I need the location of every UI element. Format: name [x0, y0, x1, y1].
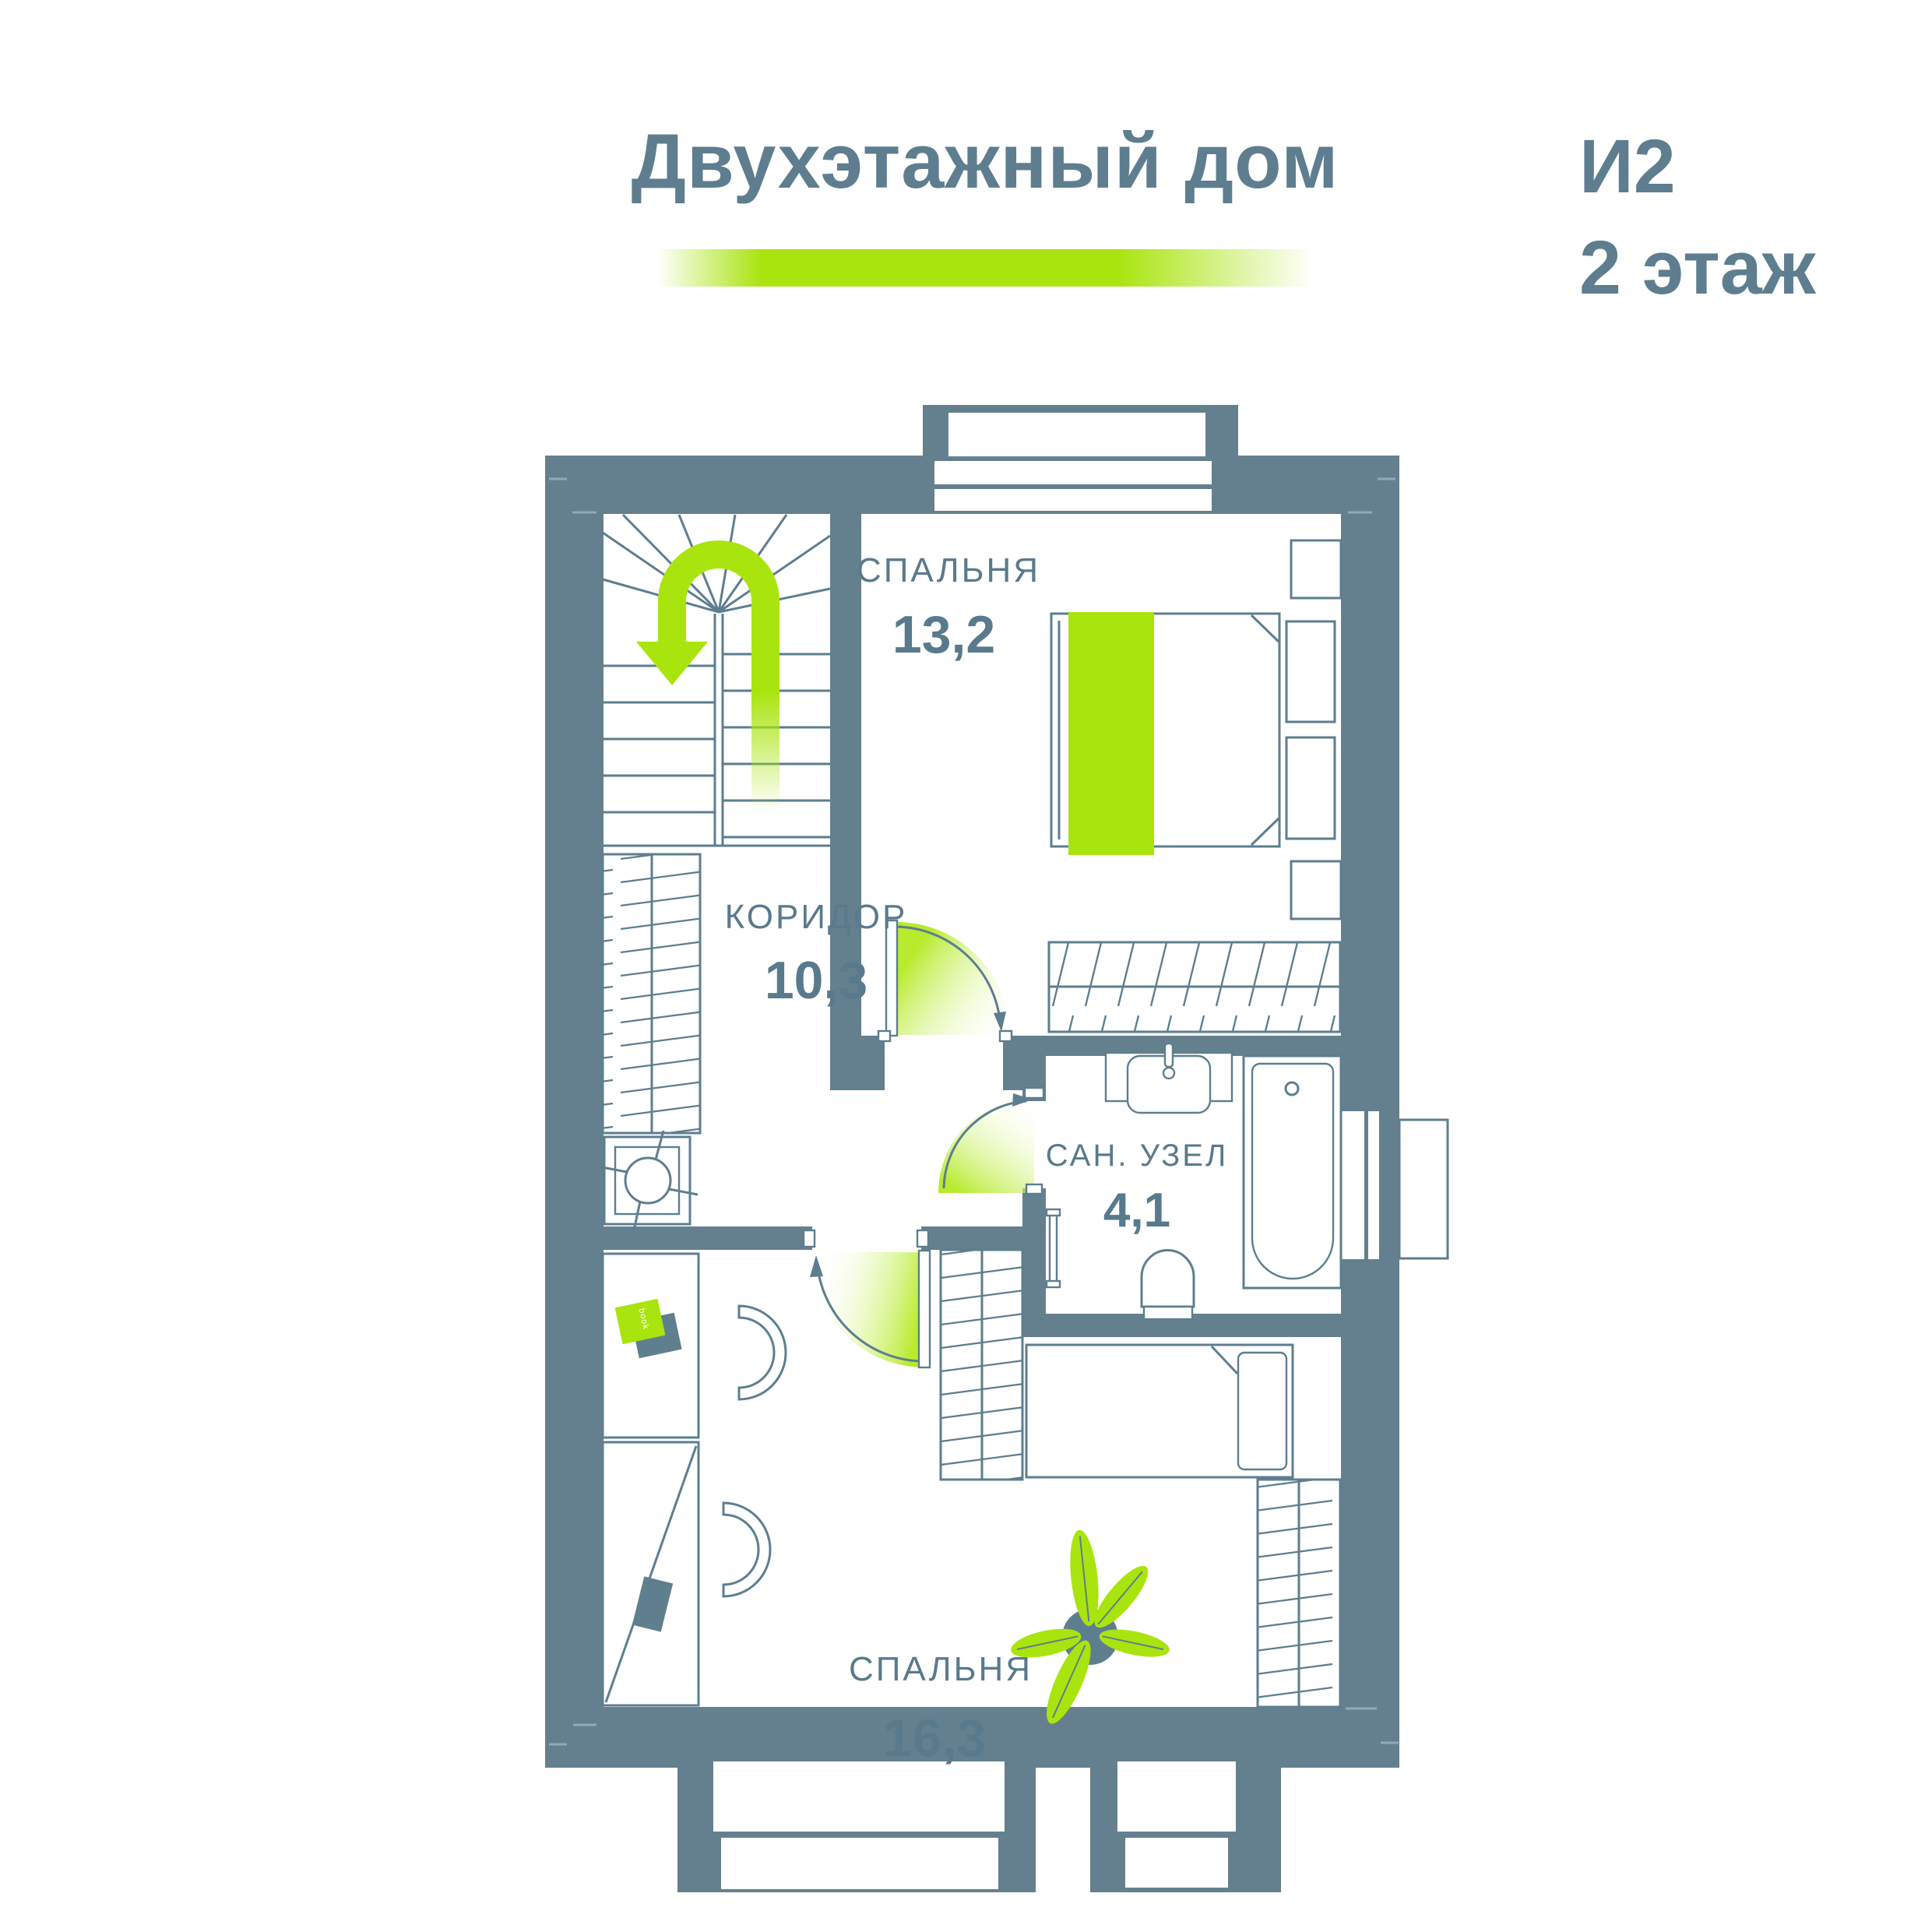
plant	[1008, 1529, 1172, 1729]
title-underline-accent	[656, 249, 1314, 287]
window-bottom-right-outer	[1125, 1838, 1228, 1888]
window-bottom-left-inner	[713, 1761, 1005, 1832]
nightstand	[1291, 861, 1341, 919]
wall-corridor-bottom-right	[921, 1226, 1022, 1250]
bedroom1-furniture	[1049, 540, 1341, 1032]
door-leaf	[1025, 1088, 1043, 1098]
chimney-bump	[1399, 1120, 1448, 1258]
faucet-icon	[1165, 1043, 1173, 1067]
room-area-corridor: 10,3	[765, 951, 867, 1010]
wardrobe-bedroom1	[1049, 942, 1340, 1032]
door-bedroom2	[804, 1230, 930, 1367]
wardrobe-corridor	[603, 854, 700, 1133]
page-title: Двухэтажный дом	[631, 117, 1339, 206]
pillow	[1238, 1353, 1286, 1469]
single-bed	[1026, 1345, 1293, 1477]
window-bottom-right-inner	[1117, 1761, 1236, 1832]
stair-treads	[603, 614, 830, 846]
nightstand	[1291, 540, 1341, 598]
door-bathroom	[938, 1088, 1043, 1194]
arrow-down-icon	[636, 642, 708, 685]
vent-shaft-slat-1	[1341, 1111, 1364, 1259]
drafting-desk	[603, 1442, 699, 1705]
double-bed	[1051, 612, 1335, 855]
wall-left	[545, 456, 604, 1768]
corridor-furniture	[598, 854, 700, 1230]
bathroom-fixtures	[1047, 1043, 1341, 1319]
door-leaf	[919, 1251, 930, 1367]
window-bottom-left-outer	[721, 1838, 998, 1889]
wardrobe-bedroom2-lower	[1258, 1480, 1340, 1707]
stair-direction-arrow	[636, 540, 779, 810]
towel-rail	[1047, 1209, 1060, 1287]
bed-blanket	[1068, 612, 1154, 855]
staircase	[603, 515, 830, 846]
room-name-bedroom2: СПАЛЬНЯ	[849, 1650, 1033, 1688]
bathtub	[1244, 1056, 1341, 1288]
wall-bedroom1-bottom-left	[830, 1036, 885, 1090]
sink	[1106, 1043, 1232, 1113]
room-name-bathroom: САН. УЗЕЛ	[1046, 1138, 1228, 1173]
door-bedroom1	[878, 920, 1012, 1041]
door-leaf	[886, 920, 897, 1036]
room-area-bathroom: 4,1	[1103, 1184, 1170, 1237]
wardrobe-bedroom2-upper	[941, 1250, 1022, 1480]
plan-code: И2	[1579, 123, 1676, 210]
room-area-bedroom2: 16,3	[883, 1709, 986, 1768]
window-top-middle	[934, 461, 1212, 484]
room-name-bedroom1: СПАЛЬНЯ	[857, 551, 1040, 589]
desk-chair	[739, 1306, 786, 1399]
pillow	[1286, 621, 1335, 722]
wall-bedroom1-bottom-right	[1003, 1036, 1046, 1090]
desk-chair	[723, 1503, 770, 1596]
water-heater	[598, 1131, 698, 1230]
floor-plan-page: Двухэтажный дом И2 2 этаж	[0, 0, 1932, 1932]
vent-shaft-slat-2	[1368, 1111, 1379, 1259]
wall-bathroom-left-lower	[1022, 1188, 1046, 1314]
room-area-bedroom1: 13,2	[892, 605, 995, 664]
floor-label: 2 этаж	[1579, 224, 1815, 311]
toilet	[1142, 1250, 1194, 1319]
pillow	[1286, 737, 1335, 839]
room-name-corridor: КОРИДОР	[725, 898, 908, 936]
window-top-outer	[948, 413, 1205, 456]
window-top-inner	[934, 489, 1212, 511]
floor-plan-drawing: book СПАЛЬНЯ 1	[537, 401, 1456, 1900]
